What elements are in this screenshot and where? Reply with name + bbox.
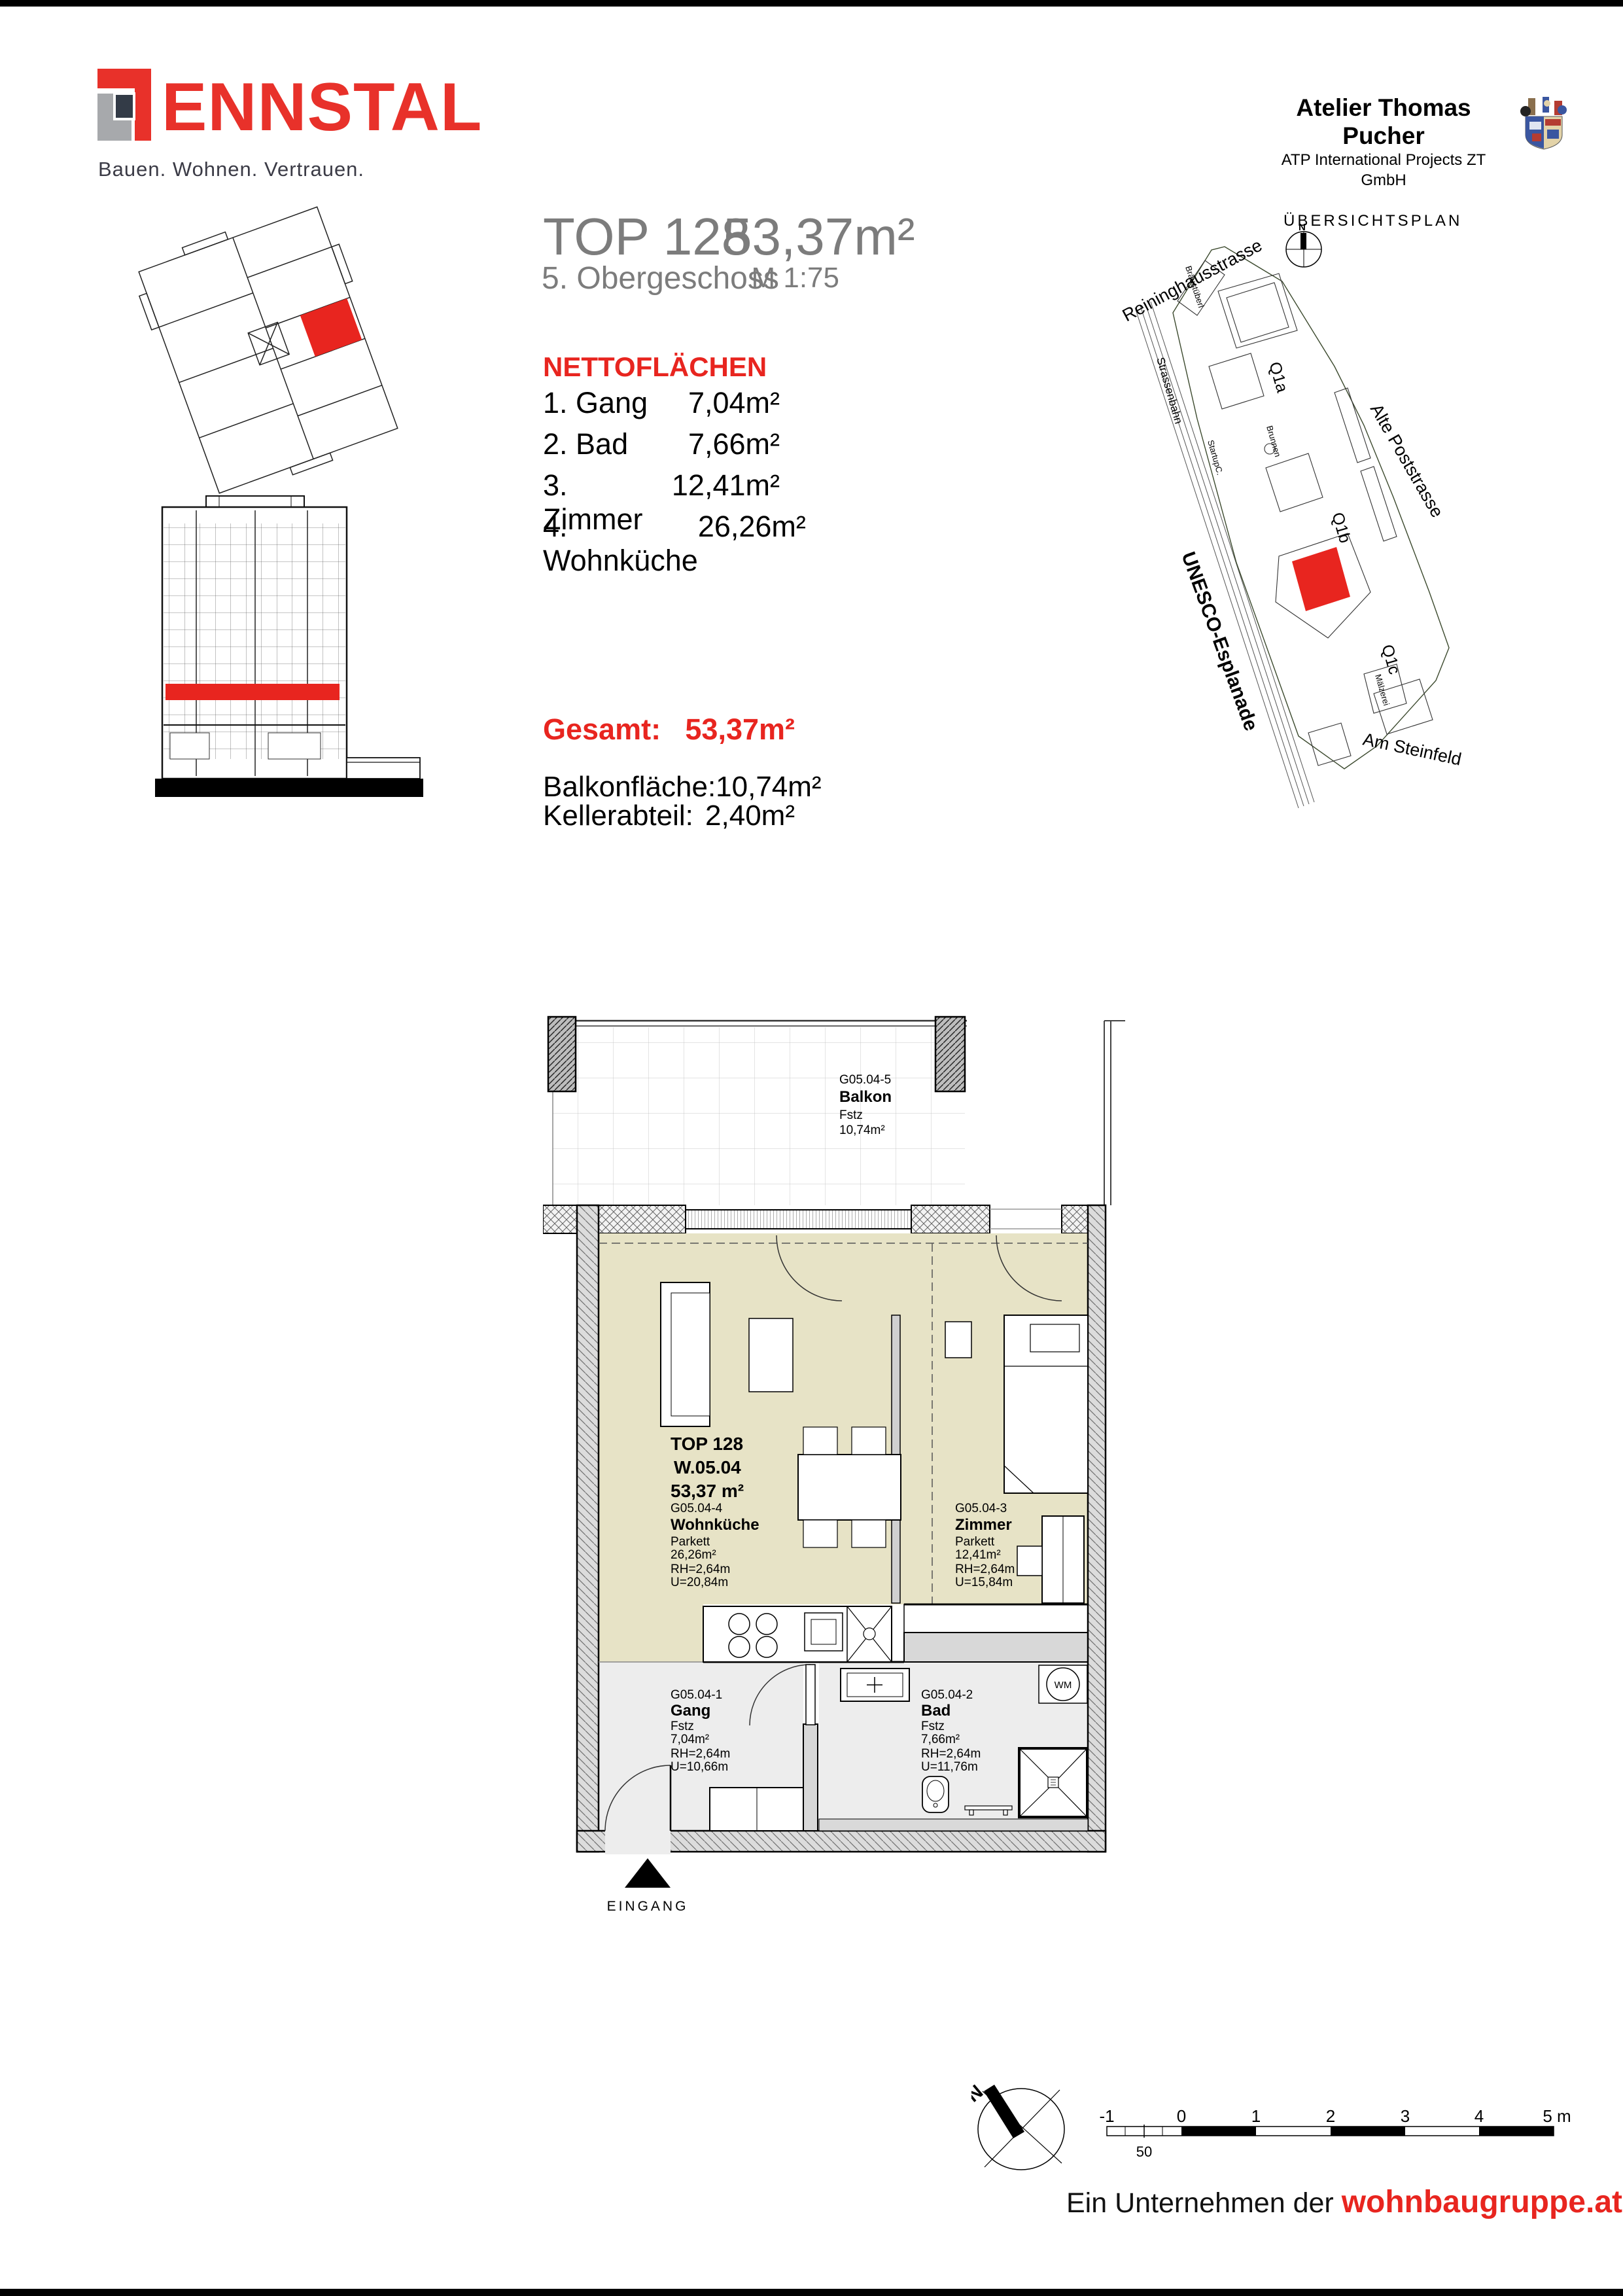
balcony-pillar-left <box>548 1017 576 1091</box>
gang-area: 7,04m² <box>671 1733 709 1746</box>
bad-area: 7,66m² <box>921 1733 960 1746</box>
bad-door-leaf <box>806 1665 815 1725</box>
netto-total-label: Gesamt: <box>543 713 661 747</box>
balcony-pillar-right <box>935 1017 965 1091</box>
bad-perimeter: U=11,76m <box>921 1760 978 1774</box>
scale-tick: 4 <box>1475 2106 1484 2126</box>
block-label-q1c: Q1c <box>1378 643 1404 677</box>
extra-label: Kellerabteil: <box>543 800 693 828</box>
netto-row-value: 7,04m² <box>688 386 780 427</box>
scale-tick: 0 <box>1177 2106 1186 2126</box>
unit-number: TOP 128 <box>671 1434 743 1454</box>
scale-tick: 5 m <box>1543 2106 1570 2126</box>
block-label-q1b: Q1b <box>1328 510 1354 545</box>
pillow-icon <box>1030 1324 1079 1352</box>
living-area-floor-strip <box>599 1604 703 1662</box>
scale-bar: -1 0 1 2 3 4 5 m 50 <box>1099 2091 1570 2163</box>
plan-compass-icon: N <box>971 2081 1076 2185</box>
unit-title-label: TOP 128 W.05.04 53,37 m² <box>671 1434 744 1501</box>
street-label-am-steinfeld: Am Steinfeld <box>1361 730 1463 769</box>
netto-row: 1. Gang 7,04m² <box>543 386 780 427</box>
oven-icon <box>805 1613 843 1651</box>
chair-icon <box>803 1520 837 1547</box>
gang-perimeter: U=10,66m <box>671 1760 728 1774</box>
poi-label-brunnen: Brunnen <box>1265 425 1283 458</box>
zimmer-bad-wall <box>904 1633 1088 1662</box>
netto-row: 2. Bad 7,66m² <box>543 427 780 468</box>
netto-extra-row: Balkonfläche: 10,74m² <box>543 771 795 800</box>
entrance-marker: EINGANG <box>607 1858 689 1914</box>
netto-total-value: 53,37m² <box>685 713 795 747</box>
sheet-area-title: 53,37m² <box>723 211 915 263</box>
plan-sheet: ENNSTAL Bauen. Wohnen. Vertrauen. Atelie… <box>0 0 1623 2296</box>
scale-tick: 1 <box>1251 2106 1261 2126</box>
architect-subtitle: ATP International Projects ZT GmbH <box>1263 150 1505 190</box>
key-plan <box>111 193 412 501</box>
living-window-band <box>686 1210 911 1229</box>
entrance-opening <box>605 1828 671 1854</box>
netto-row-label: 2. Bad <box>543 427 628 468</box>
wohnkueche-floor-finish: Parkett <box>671 1535 710 1549</box>
netto-total-row: Gesamt: 53,37m² <box>543 713 795 747</box>
balkon-floor-finish: Fstz <box>839 1108 863 1122</box>
scale-tick: 3 <box>1401 2106 1410 2126</box>
balkon-area: 10,74m² <box>839 1123 885 1137</box>
site-highlighted-building <box>1292 547 1350 611</box>
elevation-tower <box>162 496 347 779</box>
scale-tick: -1 <box>1099 2106 1114 2126</box>
kitchen-counter <box>703 1606 892 1662</box>
floor-plan: WM G05.04-5 <box>543 1008 1125 1924</box>
ennstal-logo-mark-navy <box>116 95 133 118</box>
exterior-wall-left <box>577 1205 599 1852</box>
site-buildings <box>1178 260 1433 766</box>
crest-plumes <box>1520 97 1567 116</box>
balkon-label: G05.04-5 Balkon Fstz 10,74m² <box>839 1073 892 1137</box>
desk-icon <box>1017 1546 1042 1576</box>
architect-block: Atelier Thomas Pucher ATP International … <box>1263 94 1505 190</box>
netto-row-value: 12,41m² <box>672 468 780 510</box>
elevation-highlighted-floor <box>166 684 340 700</box>
bad-lower-wall <box>819 1819 1088 1831</box>
coffee-table-icon <box>749 1318 793 1392</box>
netto-row-label: 3. Zimmer <box>543 468 672 510</box>
chair-icon <box>803 1427 837 1455</box>
poi-label-startup: StartupC. <box>1206 439 1225 476</box>
balkon-name: Balkon <box>839 1088 892 1106</box>
entrance-arrow-icon <box>625 1858 671 1888</box>
elevation-annex <box>347 758 420 779</box>
gang-bad-wall <box>803 1724 818 1831</box>
zimmer-code: G05.04-3 <box>955 1502 1007 1515</box>
zimmer-perimeter: U=15,84m <box>955 1576 1013 1589</box>
building-elevation <box>144 487 438 808</box>
exterior-wall-right <box>1088 1205 1106 1852</box>
site-plan: ÜBERSICHTSPLAN N <box>1106 209 1623 811</box>
key-plan-outline <box>129 197 408 501</box>
ennstal-tagline: Bauen. Wohnen. Vertrauen. <box>98 158 364 181</box>
extra-label: Balkonfläche: <box>543 771 716 800</box>
balkon-code: G05.04-5 <box>839 1073 891 1087</box>
scale-bar-graphic <box>1107 2125 1554 2138</box>
elevation-ground-line <box>155 779 423 797</box>
extra-value: 2,40m² <box>705 800 795 828</box>
netto-extra-rows: Balkonfläche: 10,74m² Kellerabteil: 2,40… <box>543 771 795 828</box>
wohnkueche-height: RH=2,64m <box>671 1563 730 1576</box>
wohnkueche-name: Wohnküche <box>671 1516 759 1534</box>
netto-heading: NETTOFLÄCHEN <box>543 351 767 383</box>
footer-brand-link[interactable]: wohnbaugruppe.at <box>1342 2185 1622 2219</box>
balcony-floor <box>553 1027 965 1205</box>
poi-label-maelzerei: Mälzerei <box>1373 673 1391 707</box>
zimmer-name: Zimmer <box>955 1516 1012 1534</box>
chair-icon <box>852 1427 886 1455</box>
key-plan-highlighted-unit <box>300 298 362 357</box>
sheet-scale-label: M 1:75 <box>707 262 839 294</box>
zimmer-height: RH=2,64m <box>955 1563 1015 1576</box>
toilet-icon <box>922 1776 949 1812</box>
extra-value: 10,74m² <box>716 771 821 800</box>
bad-code: G05.04-2 <box>921 1688 973 1702</box>
netto-row-value: 7,66m² <box>688 427 780 468</box>
gang-code: G05.04-1 <box>671 1688 722 1702</box>
footer-prefix: Ein Unternehmen der <box>1066 2187 1342 2219</box>
bad-name: Bad <box>921 1702 951 1720</box>
unit-code: W.05.04 <box>674 1457 741 1477</box>
sheet-unit-title: TOP 128 <box>543 211 750 263</box>
netto-row: 3. Zimmer 12,41m² <box>543 468 780 510</box>
shower-icon <box>1019 1748 1087 1817</box>
netto-row-label: 4. Wohnküche <box>543 510 698 551</box>
chair-icon <box>852 1520 886 1547</box>
eingang-label: EINGANG <box>607 1899 689 1914</box>
nightstand-icon <box>945 1322 971 1358</box>
page-top-border <box>0 0 1623 7</box>
gang-height: RH=2,64m <box>671 1747 730 1761</box>
balcony <box>548 1017 967 1205</box>
unit-area: 53,37 m² <box>671 1481 744 1501</box>
crest-shield <box>1526 116 1562 149</box>
scale-tick: 2 <box>1326 2106 1335 2126</box>
netto-extra-row: Kellerabteil: 2,40m² <box>543 800 795 828</box>
block-label-q1a: Q1a <box>1265 360 1291 395</box>
parcel-boundary <box>1173 247 1449 769</box>
balcony-side-wall <box>543 1205 1106 1233</box>
neighbour-window-strip <box>1104 1021 1125 1205</box>
netto-row-value: 26,26m² <box>698 510 806 551</box>
wohnkueche-perimeter: U=20,84m <box>671 1576 728 1589</box>
netto-row-label: 1. Gang <box>543 386 648 427</box>
zimmer-floor-finish: Parkett <box>955 1535 995 1549</box>
scale-half-tick: 50 <box>1136 2144 1152 2160</box>
gang-name: Gang <box>671 1702 710 1720</box>
washing-machine-icon: WM <box>1039 1665 1087 1703</box>
wohnkueche-code: G05.04-4 <box>671 1502 723 1515</box>
street-label-unesco-esplanade: UNESCO-Esplanade <box>1177 549 1262 733</box>
street-label-strassenbahn: Strassenbahn <box>1154 356 1185 425</box>
wm-label: WM <box>1055 1680 1072 1691</box>
site-plan-title: ÜBERSICHTSPLAN <box>1283 212 1462 230</box>
north-label: N <box>1299 222 1306 233</box>
page-bottom-border <box>0 2289 1623 2296</box>
ennstal-logo-mark-column <box>135 69 151 141</box>
bad-floor-finish: Fstz <box>921 1720 945 1733</box>
zimmer-niche <box>904 1604 1088 1633</box>
wohnkueche-area: 26,26m² <box>671 1548 716 1562</box>
gang-floor-finish: Fstz <box>671 1720 694 1733</box>
dining-table-icon <box>798 1455 901 1520</box>
footer: Ein Unternehmen der wohnbaugruppe.at <box>1066 2184 1622 2220</box>
netto-row: 4. Wohnküche 26,26m² <box>543 510 780 551</box>
zimmer-area: 12,41m² <box>955 1548 1001 1562</box>
architect-crest-icon <box>1516 97 1571 150</box>
architect-name: Atelier Thomas Pucher <box>1263 94 1505 150</box>
netto-table: 1. Gang 7,04m² 2. Bad 7,66m² 3. Zimmer 1… <box>543 386 780 551</box>
ennstal-logo-text: ENNSTAL <box>162 73 482 141</box>
bad-height: RH=2,64m <box>921 1747 981 1761</box>
